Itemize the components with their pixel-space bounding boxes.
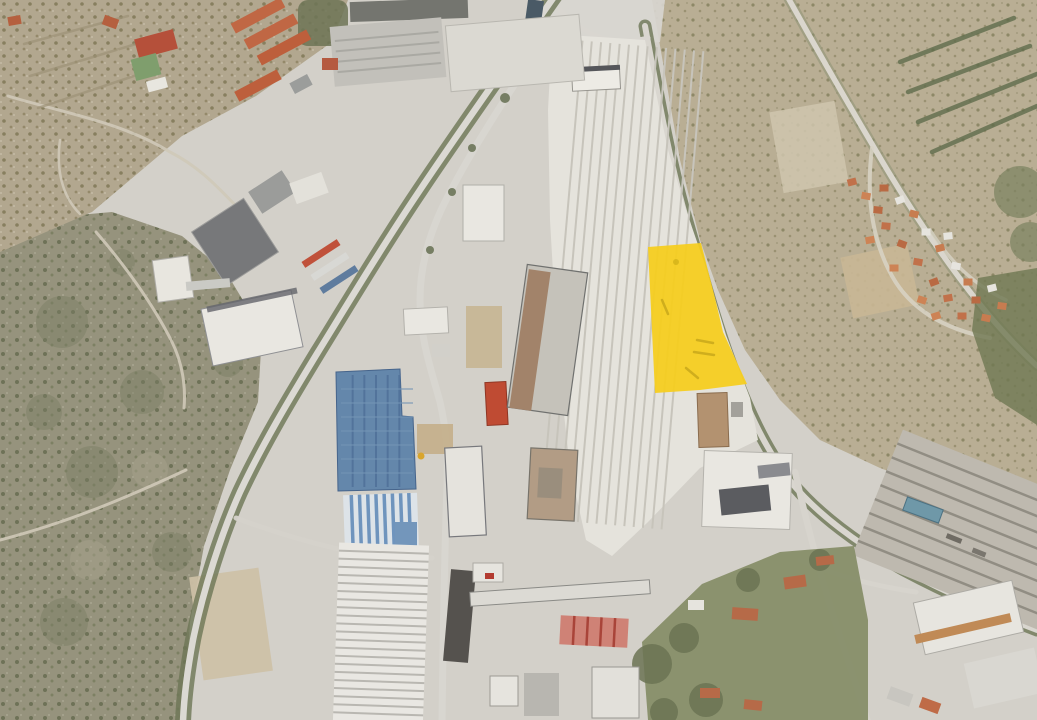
- scrub-thicket: [120, 370, 164, 414]
- shed: [731, 402, 743, 417]
- parcel-ground-marks: [673, 259, 679, 265]
- scrub-thicket: [152, 532, 192, 572]
- scrub-thicket: [40, 598, 88, 646]
- house: [964, 279, 973, 286]
- scrub-thicket: [66, 446, 118, 498]
- roadside-tree: [468, 144, 476, 152]
- house: [922, 229, 931, 236]
- field-northeast: [769, 101, 848, 193]
- house-orange: [700, 688, 720, 698]
- roadside-tree: [448, 188, 456, 196]
- house: [943, 232, 953, 240]
- dark-roof-section: [719, 484, 771, 515]
- dirt-patch: [466, 306, 502, 368]
- house: [322, 58, 338, 70]
- vehicle: [418, 453, 425, 460]
- aerial-map: [0, 0, 1037, 720]
- shed: [432, 344, 450, 357]
- red-roof-building: [485, 381, 508, 425]
- house-white: [688, 600, 704, 610]
- house: [890, 265, 899, 272]
- scrub-clearing: [70, 540, 110, 580]
- house-orange: [732, 607, 759, 621]
- scrub-thicket: [26, 394, 62, 430]
- house: [997, 302, 1007, 310]
- house: [880, 185, 889, 192]
- warehouse: [592, 667, 639, 718]
- sawtooth-factory: [333, 542, 429, 720]
- parking-lot-north: [330, 17, 447, 87]
- warehouse: [445, 446, 487, 537]
- tree-cluster: [736, 568, 760, 592]
- house: [881, 222, 891, 230]
- building: [490, 676, 518, 706]
- warehouse: [463, 185, 504, 241]
- building: [403, 307, 448, 335]
- scrub-clearing: [132, 452, 168, 488]
- house: [873, 206, 883, 214]
- house-orange: [744, 699, 763, 711]
- house-orange: [816, 555, 835, 566]
- scrub-thicket: [36, 296, 88, 348]
- red-courts: [559, 615, 628, 648]
- warehouse-north: [445, 14, 584, 91]
- building: [524, 673, 559, 716]
- aerial-map-canvas: [0, 0, 1037, 720]
- tree-cluster: [669, 623, 699, 653]
- tan-building: [697, 392, 729, 447]
- red-mark: [485, 573, 494, 579]
- house: [972, 297, 981, 304]
- building: [473, 563, 503, 582]
- warehouse-annex: [395, 522, 417, 548]
- roof-stain: [537, 467, 563, 498]
- house: [958, 313, 967, 320]
- warehouse: [152, 256, 193, 303]
- roadside-tree: [426, 246, 434, 254]
- roadside-tree: [500, 93, 510, 103]
